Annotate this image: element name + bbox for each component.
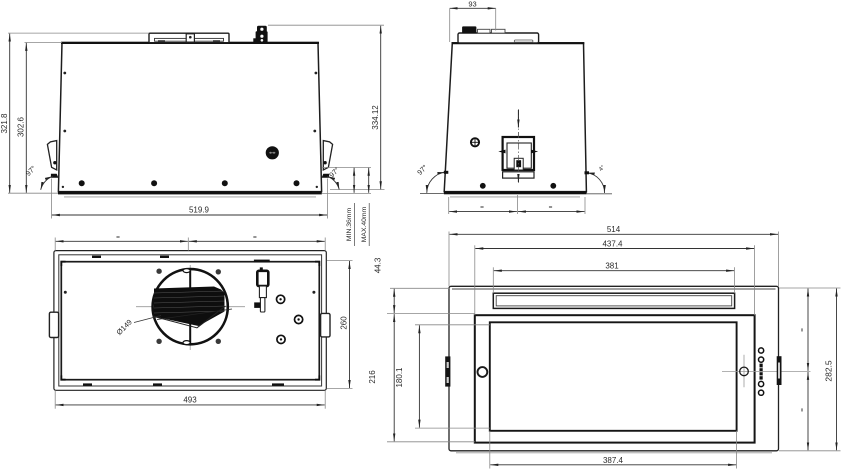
svg-text:216: 216 xyxy=(368,370,377,384)
svg-text:=: = xyxy=(480,204,484,211)
svg-text:334.12: 334.12 xyxy=(371,105,380,130)
svg-text:302.6: 302.6 xyxy=(16,116,25,137)
svg-text:97°: 97° xyxy=(24,164,38,178)
svg-text:282.5: 282.5 xyxy=(824,360,834,382)
svg-text:97°: 97° xyxy=(415,163,429,177)
svg-text:180.1: 180.1 xyxy=(395,367,404,388)
svg-text:519.9: 519.9 xyxy=(189,206,210,215)
svg-text:=: = xyxy=(549,204,553,211)
svg-text:514: 514 xyxy=(607,225,621,234)
svg-text:321.8: 321.8 xyxy=(0,113,9,134)
svg-text:MIN.36mm: MIN.36mm xyxy=(346,208,353,242)
svg-text:381: 381 xyxy=(605,261,619,270)
svg-text:493: 493 xyxy=(183,396,197,405)
svg-text:MAX.40mm: MAX.40mm xyxy=(361,206,368,242)
svg-text:437.4: 437.4 xyxy=(602,239,623,248)
svg-text:4°: 4° xyxy=(598,164,607,173)
svg-text:=: = xyxy=(799,328,806,332)
svg-text:=: = xyxy=(799,408,806,412)
svg-text:44.3: 44.3 xyxy=(374,257,383,273)
svg-text:260: 260 xyxy=(340,316,349,330)
svg-text:=: = xyxy=(116,234,120,241)
svg-text:=: = xyxy=(253,234,257,241)
svg-text:387.4: 387.4 xyxy=(603,456,624,465)
svg-text:93: 93 xyxy=(468,0,476,9)
